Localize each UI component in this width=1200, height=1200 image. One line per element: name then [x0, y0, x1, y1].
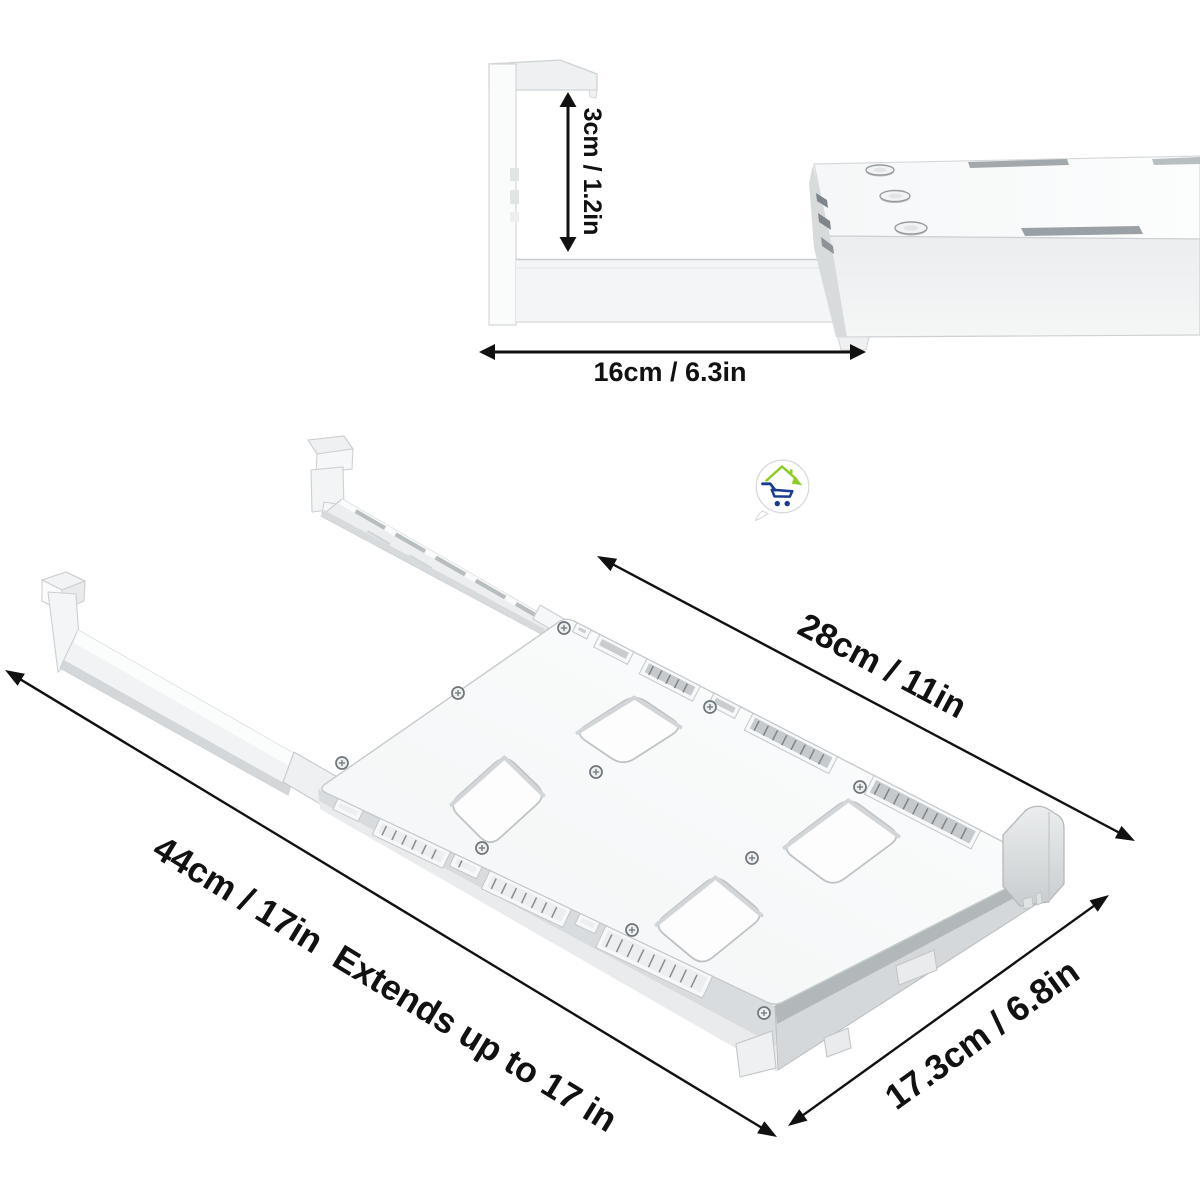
svg-text:3cm / 1.2in: 3cm / 1.2in	[578, 108, 606, 236]
svg-text:16cm / 6.3in: 16cm / 6.3in	[593, 357, 746, 387]
